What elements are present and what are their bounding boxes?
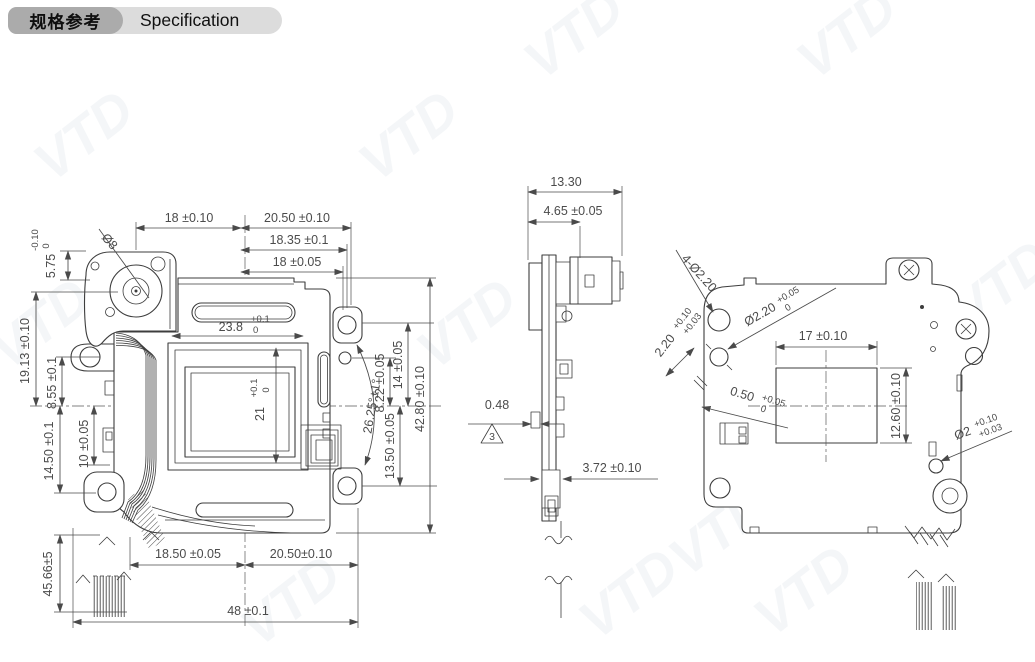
dim-right-4280: 42.80 ±0.10 <box>413 366 427 432</box>
dim-back-off220: 2.20 <box>652 332 678 360</box>
technical-drawing: VTD VTD VTD VTD VTD VTD VTD VTD VTD VTD … <box>0 0 1035 662</box>
watermark-text: VTD <box>513 0 635 91</box>
left-ear-upper <box>71 344 114 371</box>
side-view: 13.30 4.65 ±0.05 0.48 3 3.72 ±0.10 <box>468 175 658 618</box>
spec-sheet-page: 规格参考 Specification VTD VTD VTD VTD VTD V… <box>0 0 1035 662</box>
pivot-hole <box>339 352 351 364</box>
dim-right-14: 14 ±0.05 <box>391 341 405 390</box>
dim-top-18b: 18 ±0.05 <box>273 255 322 269</box>
left-edge-detail <box>105 381 114 395</box>
dim-aperture-height-tol-l: 0 <box>261 387 272 392</box>
dim-left-575-tol-l: -0.10 <box>30 229 41 251</box>
dim-left-855: 8.55 ±0.1 <box>45 357 59 409</box>
dim-slot-width-tol-u: +0.1 <box>251 314 270 325</box>
back-break-marks <box>905 526 956 630</box>
dim-left-4566: 45.66±5 <box>41 551 55 596</box>
dim-top-2050: 20.50 ±0.10 <box>264 211 330 225</box>
watermark-text: VTD <box>786 0 908 91</box>
dim-back-1260: 12.60 ±0.10 <box>889 373 903 439</box>
side-body <box>529 255 623 521</box>
watermark-text: VTD <box>406 267 528 381</box>
connector <box>720 423 748 444</box>
note-triangle-3: 3 <box>489 431 495 443</box>
dim-left-1913: 19.13 ±0.10 <box>18 318 32 384</box>
mount-tab-upper <box>333 307 362 343</box>
dim-motor-diameter: Ø8 <box>99 231 121 253</box>
dim-side-1330: 13.30 <box>550 175 581 189</box>
dim-aperture-height-tol-u: +0.1 <box>249 379 260 398</box>
motor-end-cap <box>612 261 620 301</box>
dim-right-1350: 13.50 ±0.05 <box>383 413 397 479</box>
dim-left-575: 5.75 <box>44 254 58 278</box>
dim-left-1450: 14.50 ±0.1 <box>42 421 56 480</box>
motor-bracket <box>556 262 570 304</box>
bottom-boss <box>933 479 967 513</box>
left-edge-latch-inner <box>106 432 112 440</box>
dim-bottom-48: 48 ±0.1 <box>227 604 269 618</box>
dim-top-18: 18 ±0.10 <box>165 211 214 225</box>
dim-back-17: 17 ±0.10 <box>799 329 848 343</box>
watermark-text: VTD <box>348 79 470 193</box>
dim-bottom-1850: 18.50 ±0.05 <box>155 547 221 561</box>
dim-aperture-height: 21 <box>253 407 267 421</box>
motor-center-dot <box>135 290 138 293</box>
dim-side-465: 4.65 ±0.05 <box>544 204 603 218</box>
left-ear-lower <box>84 472 124 512</box>
front-view: 18 ±0.10 20.50 ±0.10 18.35 ±0.1 18 ±0.05… <box>18 211 442 628</box>
dim-top-1835: 18.35 ±0.1 <box>270 233 329 247</box>
watermark-text: VTD <box>23 79 145 193</box>
dim-slot-width: 23.8 <box>219 320 243 334</box>
dim-left-10: 10 ±0.05 <box>77 420 91 469</box>
side-tab-048 <box>531 412 540 428</box>
dim-side-372: 3.72 ±0.10 <box>583 461 642 475</box>
watermark-text: VTD <box>743 534 865 648</box>
dim-slot-width-tol-l: 0 <box>253 325 258 336</box>
dim-left-575-tol-u: 0 <box>41 243 52 248</box>
mount-tab-lower <box>333 468 362 504</box>
dim-bottom-2050: 20.50±0.10 <box>270 547 333 561</box>
dim-side-048: 0.48 <box>485 398 509 412</box>
